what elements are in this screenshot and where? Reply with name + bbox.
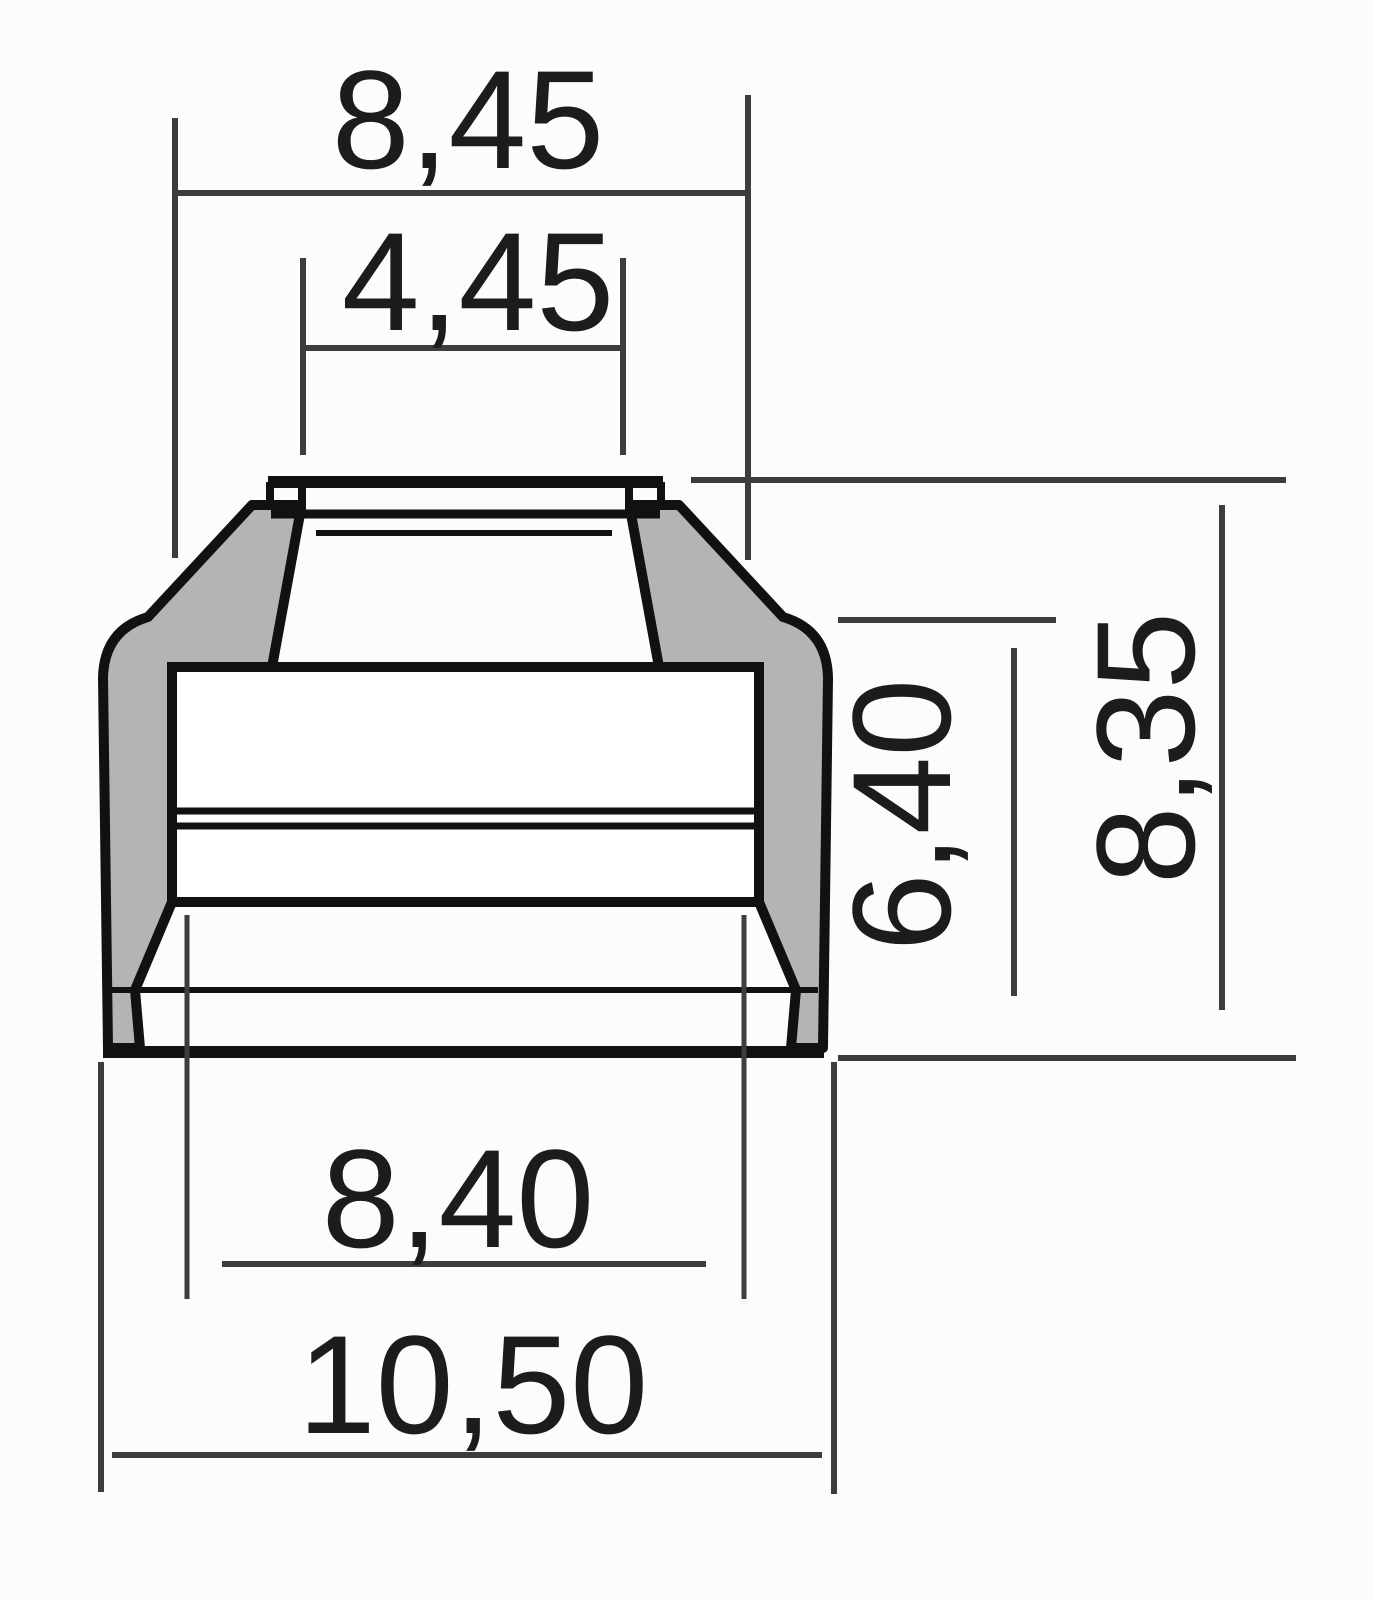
sealing-lip: [268, 480, 663, 533]
dim-label-total-height: 8,35: [1067, 612, 1224, 884]
dim-label-inner-top-width: 4,45: [342, 203, 614, 360]
drawing-page: 8,45 4,45 6,40 8,35 8,40 10,50: [0, 0, 1374, 1600]
seal-cross-section: [103, 480, 828, 1052]
dim-label-outer-bottom-width: 10,50: [298, 1306, 648, 1463]
bottom-flange: [103, 990, 824, 1052]
dim-label-inner-bottom-width: 8,40: [322, 1120, 594, 1277]
dim-label-shoulder-height: 6,40: [823, 679, 980, 951]
valve-stem-seal-drawing: 8,45 4,45 6,40 8,35 8,40 10,50: [0, 0, 1374, 1600]
dim-label-outer-top-width: 8,45: [332, 41, 604, 198]
insert-ring: [172, 667, 759, 902]
